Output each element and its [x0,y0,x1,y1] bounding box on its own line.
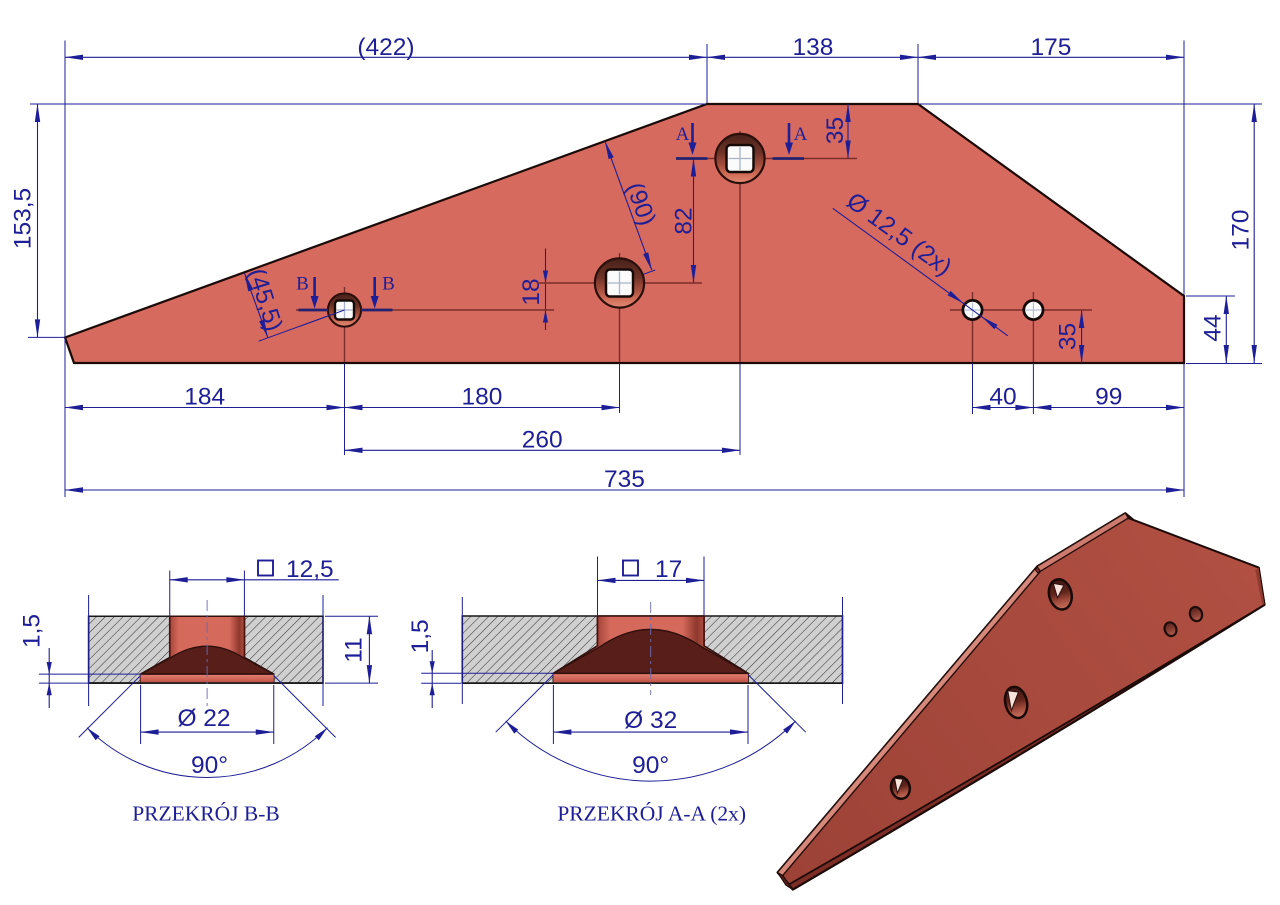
svg-text:184: 184 [184,384,225,411]
svg-text:44: 44 [1200,314,1227,341]
svg-text:B: B [382,274,395,295]
svg-text:153,5: 153,5 [10,188,37,249]
svg-text:180: 180 [462,384,503,411]
svg-text:1,5: 1,5 [19,614,46,648]
svg-text:Ø 22: Ø 22 [177,705,230,732]
svg-text:12,5: 12,5 [286,556,334,583]
svg-text:Ø 32: Ø 32 [624,707,677,734]
svg-text:138: 138 [793,34,834,61]
svg-text:PRZEKRÓJ B-B: PRZEKRÓJ B-B [132,802,280,826]
svg-text:99: 99 [1095,384,1122,411]
svg-text:A: A [794,124,808,145]
svg-text:A: A [676,124,690,145]
svg-text:40: 40 [989,384,1016,411]
svg-text:PRZEKRÓJ A-A (2x): PRZEKRÓJ A-A (2x) [557,802,746,826]
svg-text:35: 35 [822,117,849,144]
svg-text:11: 11 [341,637,368,662]
svg-text:175: 175 [1031,34,1072,61]
svg-text:17: 17 [655,556,682,583]
svg-text:82: 82 [671,207,698,234]
svg-text:260: 260 [522,426,563,453]
svg-text:170: 170 [1228,210,1255,251]
svg-text:735: 735 [604,466,645,493]
svg-text:1,5: 1,5 [407,619,434,653]
svg-text:(422): (422) [357,34,414,61]
svg-text:90°: 90° [191,752,228,779]
svg-text:90°: 90° [632,752,669,779]
svg-text:35: 35 [1055,323,1082,350]
svg-text:B: B [296,274,309,295]
